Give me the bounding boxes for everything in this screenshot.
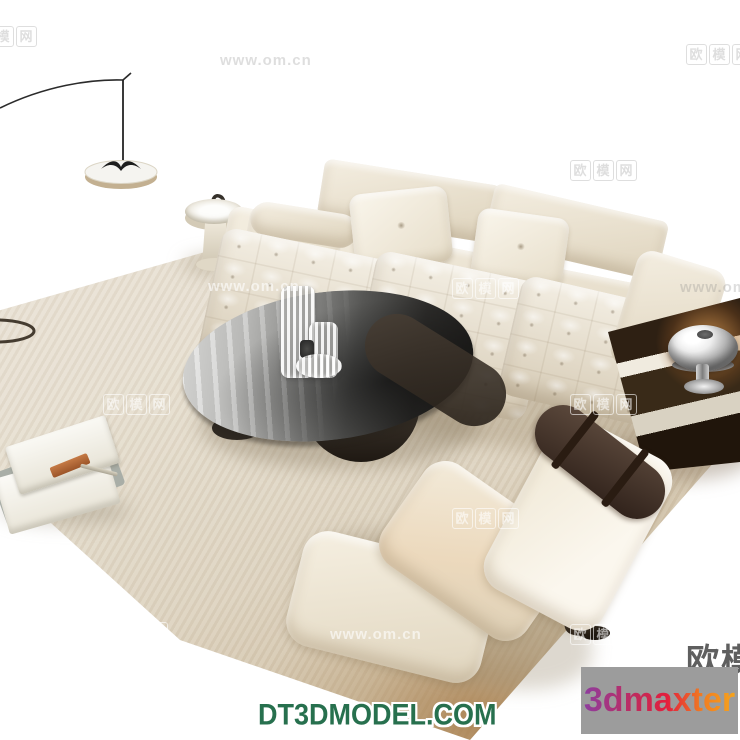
lamp-base-ring [0, 320, 34, 342]
lamp-arc-arm [0, 80, 123, 108]
maxter-logo-text: 3dmaxter [584, 681, 735, 720]
model-site-watermark: DT3DMODEL.COM [258, 699, 488, 732]
lamp-shade-top [85, 161, 157, 184]
maxter-logo-box: 3dmaxter [581, 667, 738, 734]
chrome-lamp-top-cap [697, 330, 713, 339]
lamp-arm-tip [123, 73, 131, 80]
glass-tray [296, 354, 342, 378]
furniture-render-scene: 欧模网www.om.cn欧模网欧模网欧模网www.om.cn欧模网www.om.… [0, 0, 740, 740]
chrome-lamp-base [684, 379, 724, 394]
